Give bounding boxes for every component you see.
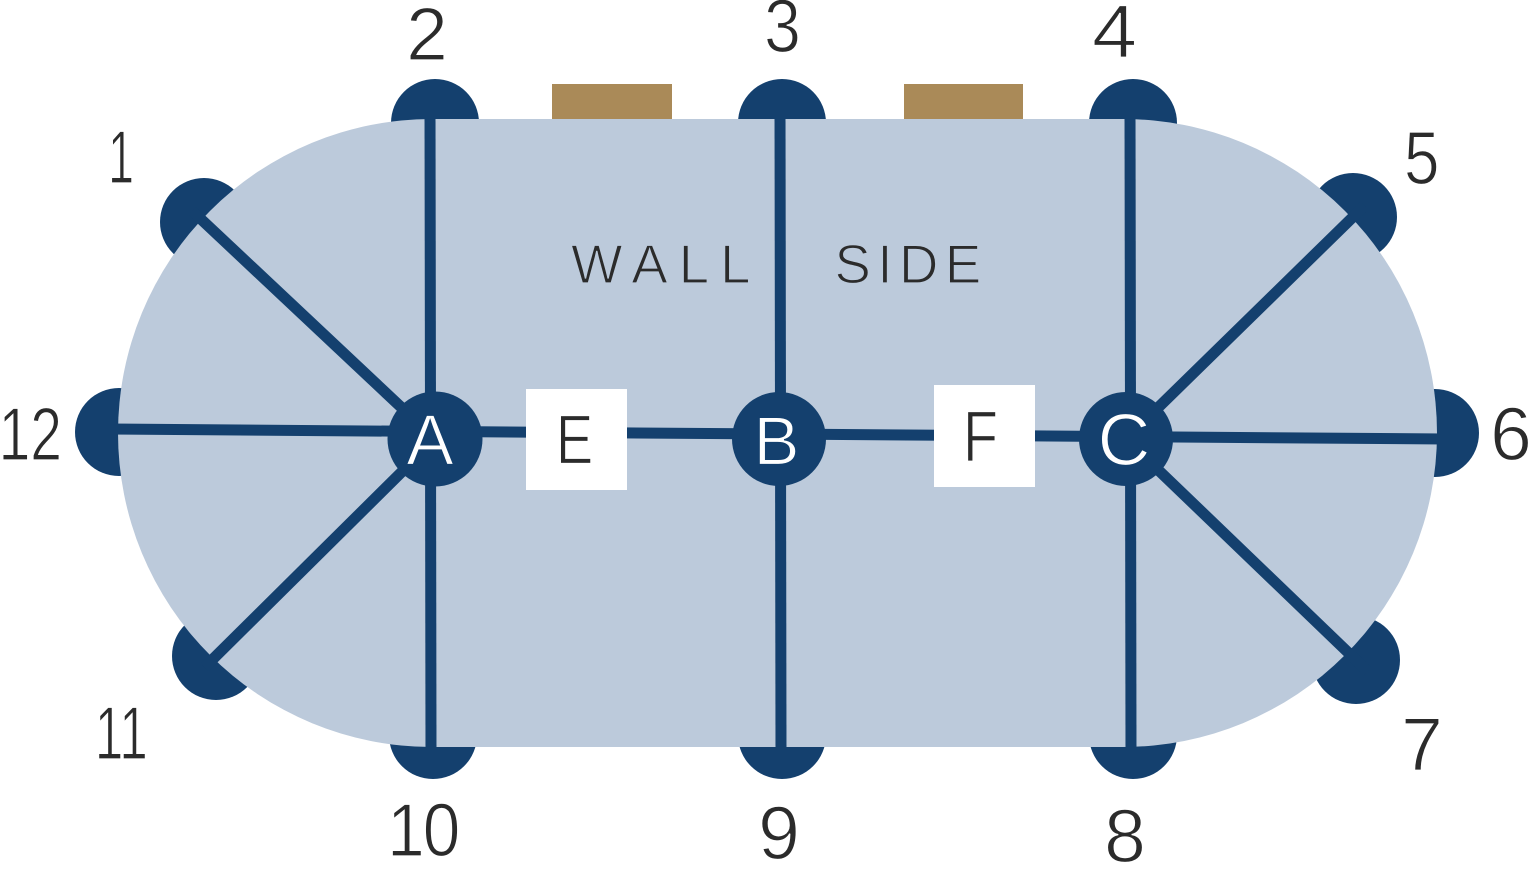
svg-text:2: 2 (406, 0, 448, 76)
svg-text:9: 9 (758, 791, 800, 870)
svg-text:SIDE: SIDE (835, 234, 988, 295)
svg-text:E: E (556, 402, 593, 479)
svg-text:5: 5 (1404, 116, 1439, 200)
svg-text:4: 4 (1092, 0, 1137, 73)
svg-text:3: 3 (764, 0, 801, 68)
svg-text:7: 7 (1401, 702, 1443, 786)
svg-text:12: 12 (0, 394, 62, 477)
svg-text:F: F (963, 396, 998, 477)
svg-text:B: B (753, 403, 799, 480)
svg-text:A: A (406, 402, 454, 481)
svg-text:C: C (1098, 400, 1151, 481)
svg-text:8: 8 (1104, 794, 1146, 870)
svg-text:WALL: WALL (571, 234, 761, 295)
svg-text:11: 11 (95, 691, 148, 775)
svg-text:1: 1 (108, 117, 134, 200)
svg-text:6: 6 (1490, 392, 1532, 476)
svg-text:10: 10 (387, 789, 458, 870)
